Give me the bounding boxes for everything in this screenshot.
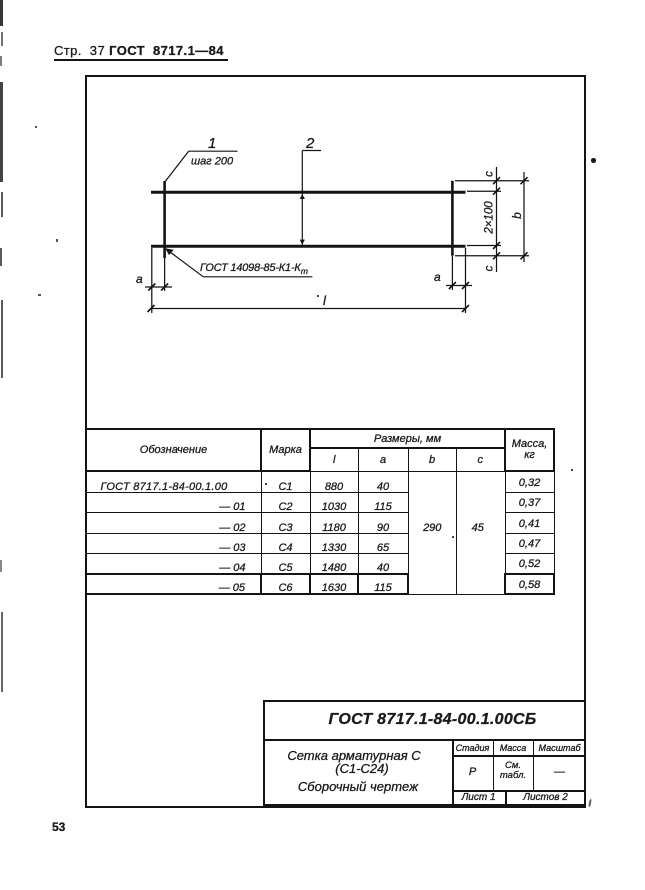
svg-text:c: c: [484, 171, 496, 177]
svg-text:ГОСТ 14098-85-К1-Кт: ГОСТ 14098-85-К1-Кт: [200, 262, 308, 276]
svg-text:1: 1: [208, 135, 216, 152]
svg-text:a: a: [434, 270, 441, 284]
svg-text:b: b: [510, 212, 524, 219]
svg-text:l: l: [323, 293, 327, 308]
svg-text:a: a: [136, 272, 143, 286]
svg-text:c: c: [484, 265, 496, 271]
svg-text:2: 2: [305, 135, 315, 152]
svg-text:шаг 200: шаг 200: [191, 156, 234, 168]
svg-text:2×100: 2×100: [484, 201, 496, 235]
